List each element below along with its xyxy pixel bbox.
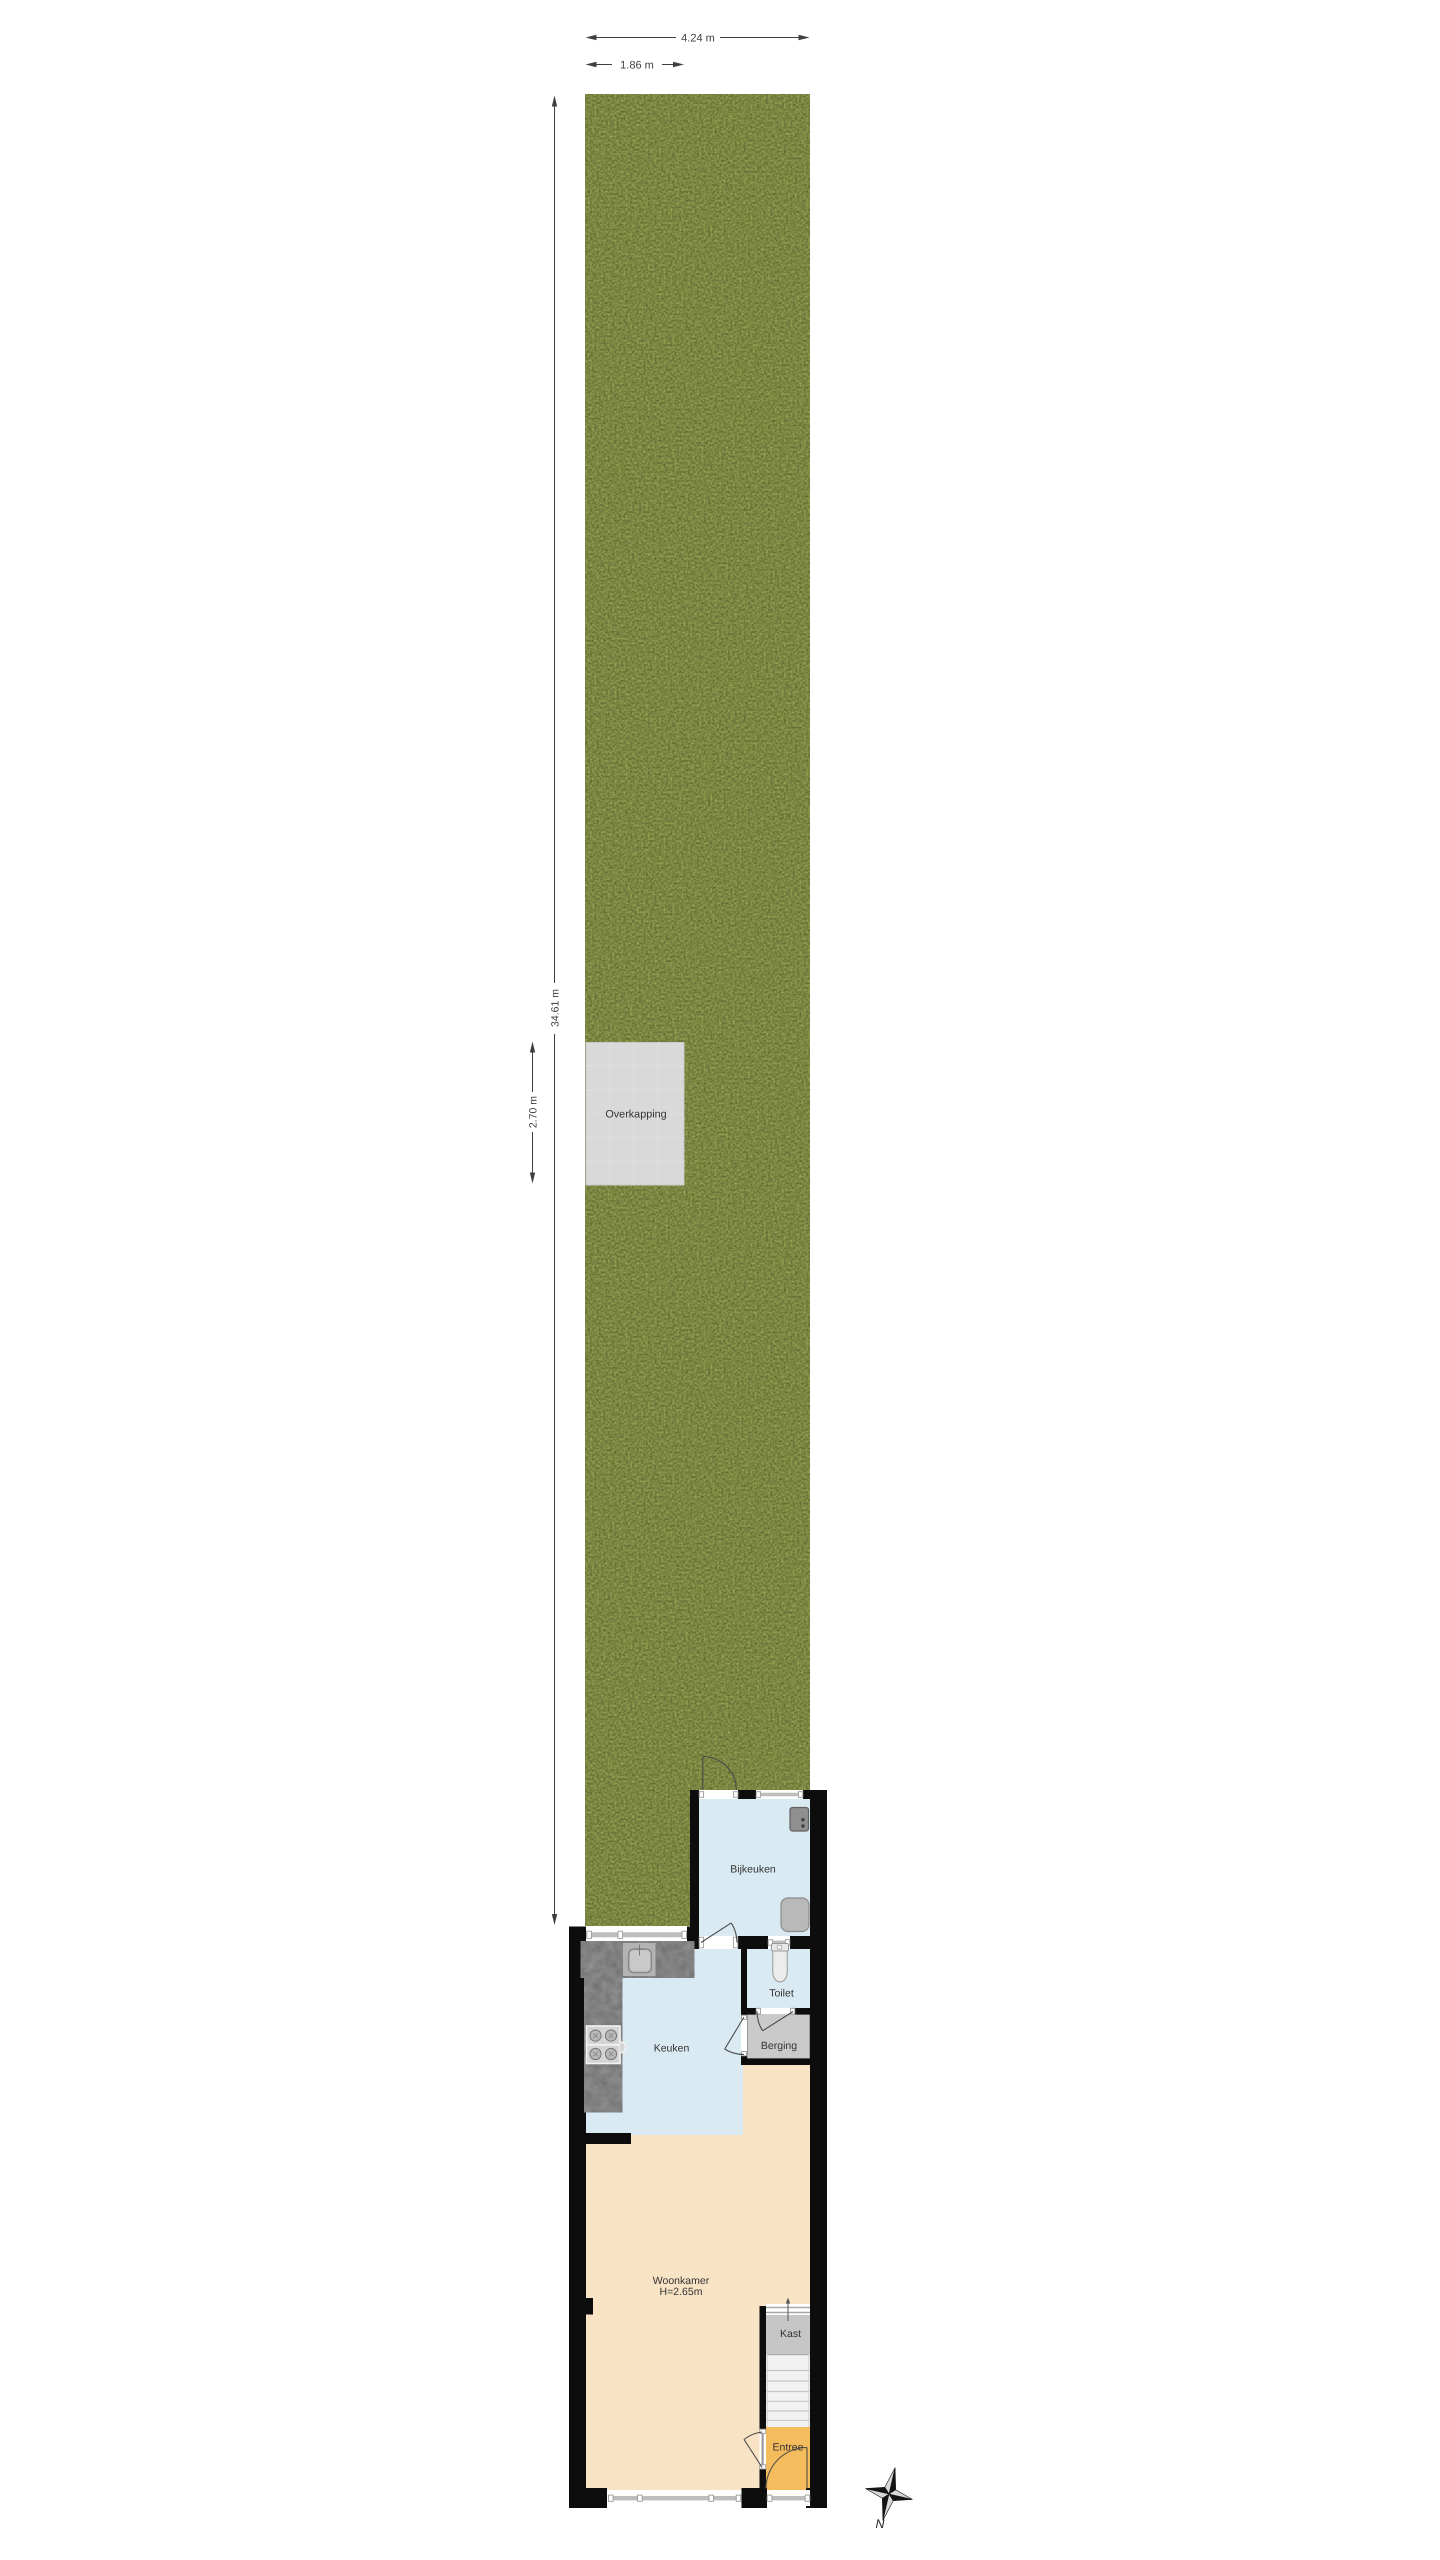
svg-text:Bijkeuken: Bijkeuken	[730, 1864, 776, 1876]
svg-text:Kast: Kast	[780, 2328, 801, 2340]
svg-text:N: N	[875, 2517, 885, 2531]
svg-text:34.61 m: 34.61 m	[550, 989, 562, 1027]
svg-text:2.70 m: 2.70 m	[528, 1096, 540, 1128]
svg-text:Keuken: Keuken	[654, 2043, 690, 2055]
svg-text:H=2.65m: H=2.65m	[660, 2286, 703, 2298]
svg-text:Entree: Entree	[773, 2442, 804, 2454]
svg-text:4.24 m: 4.24 m	[681, 32, 715, 44]
svg-text:1.86 m: 1.86 m	[620, 59, 654, 71]
svg-text:Toilet: Toilet	[769, 1988, 794, 2000]
svg-text:Berging: Berging	[761, 2040, 797, 2052]
svg-text:Overkapping: Overkapping	[605, 1109, 666, 1121]
